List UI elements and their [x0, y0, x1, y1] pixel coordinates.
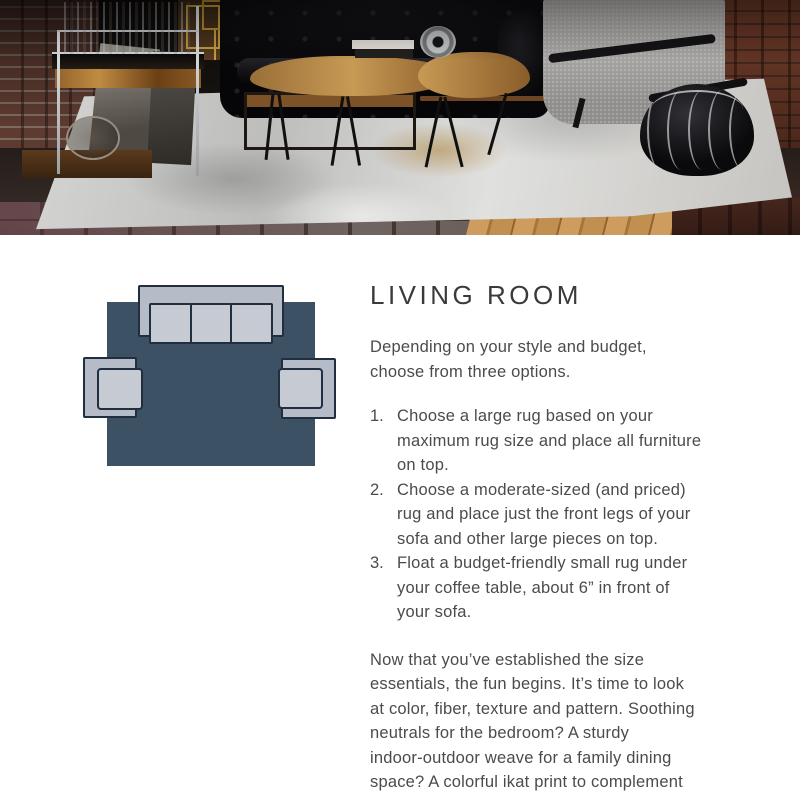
wire-basket [66, 116, 120, 160]
diagram-sofa-cushion [230, 303, 273, 344]
option-item-2: 2. Choose a moderate-sized (and priced) … [370, 478, 774, 552]
closing-paragraph: Now that you’ve established the size ess… [370, 648, 774, 800]
page-title: LIVING ROOM [370, 279, 774, 311]
intro-paragraph: Depending on your style and budget, choo… [370, 335, 774, 384]
bar-cart-wood-band [55, 69, 201, 88]
option-number: 3. [370, 551, 397, 625]
option-item-3: 3. Float a budget-friendly small rug und… [370, 551, 774, 625]
book-stack [352, 40, 414, 49]
diagram-sofa-cushion [149, 303, 192, 344]
option-text: Choose a large rug based on your maximum… [397, 404, 774, 478]
moroccan-pouf [640, 84, 754, 176]
diagram-sofa-cushion [190, 303, 233, 344]
knot-sculpture [420, 26, 456, 58]
option-text: Float a budget-friendly small rug under … [397, 551, 774, 625]
bar-cart-leg [57, 30, 60, 174]
diagram-armchair-right-seat [278, 368, 323, 409]
option-number: 1. [370, 404, 397, 478]
live-edge-coffee-table [418, 52, 530, 98]
glassware [64, 2, 194, 54]
article-column: LIVING ROOM Depending on your style and … [370, 279, 774, 800]
gold-art-line [214, 30, 216, 60]
option-item-1: 1. Choose a large rug based on your maxi… [370, 404, 774, 478]
diagram-sofa-cushions [149, 303, 273, 344]
options-list: 1. Choose a large rug based on your maxi… [370, 404, 774, 625]
pouf-stitching [729, 90, 754, 171]
option-text: Choose a moderate-sized (and priced) rug… [397, 478, 774, 552]
hero-photo [0, 0, 800, 235]
option-number: 2. [370, 478, 397, 552]
rug-guide-page: LIVING ROOM Depending on your style and … [0, 0, 800, 800]
bar-cart-top [52, 52, 204, 69]
diagram-armchair-left-seat [97, 368, 143, 410]
book-stack [355, 49, 413, 58]
